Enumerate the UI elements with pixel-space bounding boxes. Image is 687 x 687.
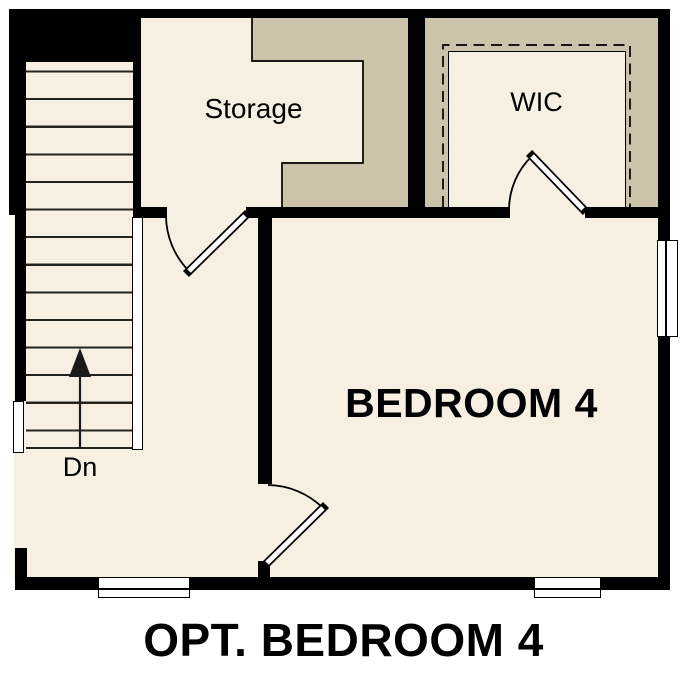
wall-bedroom-door-stub [258, 561, 270, 578]
wall-stairs-storage [133, 18, 141, 218]
window-pane-divider [665, 241, 667, 336]
wall-left-upper [9, 62, 26, 215]
window-left [13, 401, 24, 453]
bedroom-room-label: BEDROOM 4 [300, 383, 643, 424]
window-pane-divider [535, 588, 600, 590]
wall-right-lower [658, 337, 670, 590]
storage-shaded-top [252, 18, 408, 62]
wall-bedroom-west [258, 207, 272, 484]
wall-middle-right [585, 207, 670, 218]
storage-room-label: Storage [163, 95, 344, 123]
floor-plan: Storage WIC BEDROOM 4 Dn OPT. BEDROOM 4 [0, 0, 687, 687]
window-right [657, 240, 678, 337]
storage-shaded-bottom [282, 162, 408, 208]
storage-shaded-column [363, 60, 408, 164]
wic-room-label: WIC [446, 88, 627, 116]
window-pane-divider [99, 588, 189, 590]
plan-caption: OPT. BEDROOM 4 [0, 616, 687, 664]
wall-middle-center [246, 207, 510, 218]
staircase [26, 45, 133, 449]
window-bottom-left [98, 577, 190, 598]
window-bottom-right [534, 577, 601, 598]
stairs-down-label: Dn [36, 452, 124, 482]
stair-handrail [132, 217, 143, 450]
wall-storage-wic-divider [408, 18, 425, 208]
wall-left-lower [15, 215, 26, 401]
wall-storage-door-stub [133, 207, 167, 218]
wall-top [9, 9, 670, 18]
wall-left-stub [15, 548, 27, 577]
wic-closet-floor [448, 51, 626, 208]
